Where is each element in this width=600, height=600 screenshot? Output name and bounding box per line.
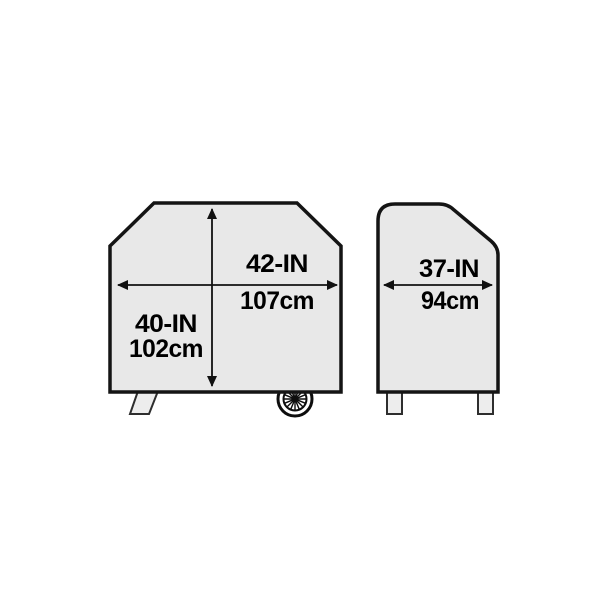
front-width-inches-label: 42-IN: [246, 250, 308, 278]
page-canvas: 42-IN 107cm 40-IN 102cm 37-IN 94cm: [0, 0, 600, 600]
side-view-front-leg: [387, 391, 402, 414]
grill-cover-dimension-diagram: 42-IN 107cm 40-IN 102cm 37-IN 94cm: [0, 0, 600, 600]
front-view: 42-IN 107cm 40-IN 102cm: [110, 203, 341, 416]
side-depth-cm-label: 94cm: [421, 287, 479, 315]
side-view: 37-IN 94cm: [378, 204, 498, 414]
side-depth-inches-label: 37-IN: [419, 255, 479, 283]
wheel-hub: [292, 396, 297, 401]
side-view-rear-leg: [478, 391, 493, 414]
front-width-cm-label: 107cm: [240, 287, 314, 315]
front-view-leg: [130, 391, 158, 414]
front-height-cm-label: 102cm: [129, 335, 203, 363]
front-height-inches-label: 40-IN: [135, 310, 197, 338]
